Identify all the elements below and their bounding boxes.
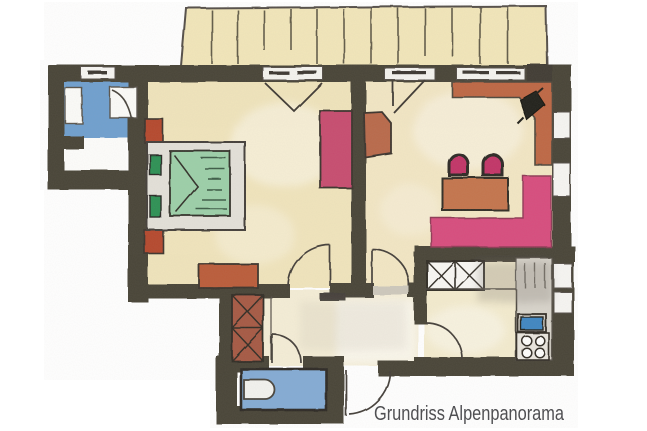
svg-text:Grundriss Alpenpanorama: Grundriss Alpenpanorama [374, 403, 565, 425]
